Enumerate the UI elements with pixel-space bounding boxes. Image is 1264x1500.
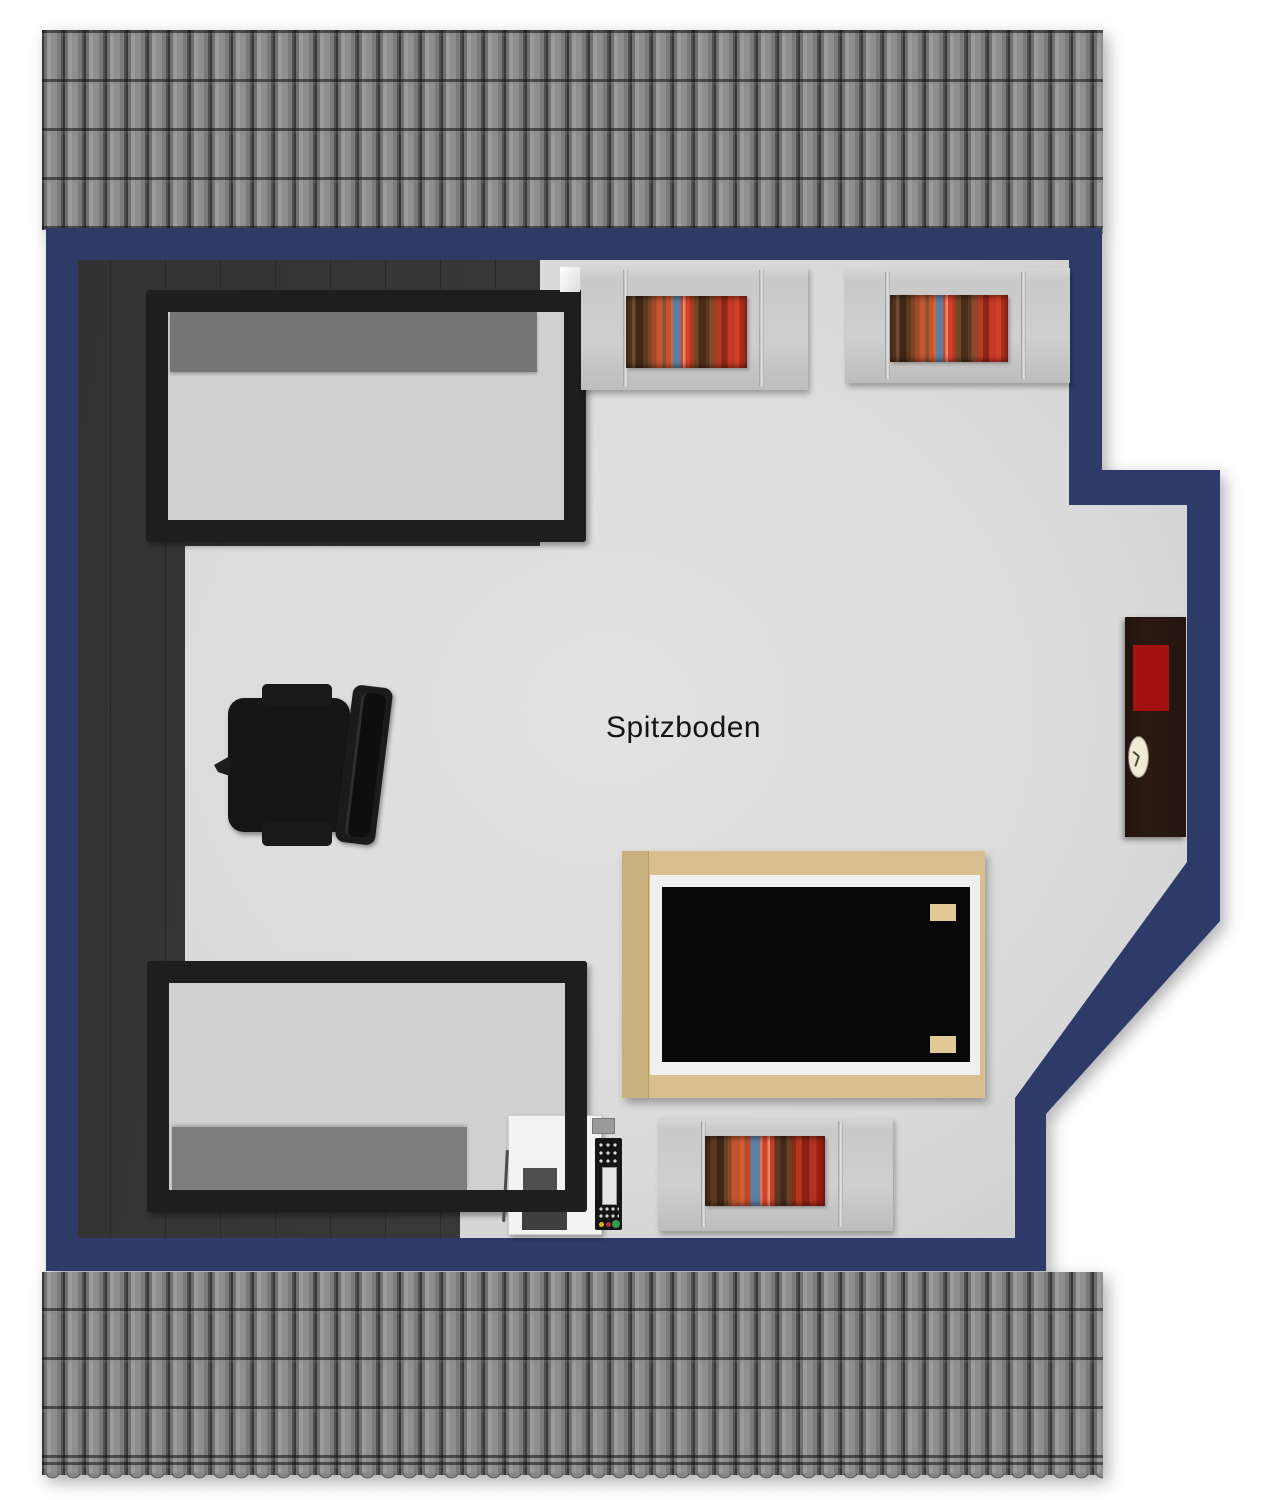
shelf-divider bbox=[1021, 272, 1026, 379]
printer-button-red bbox=[606, 1222, 611, 1227]
shelf-divider bbox=[759, 270, 764, 386]
chair-seat bbox=[228, 698, 350, 832]
room-label: Spitzboden bbox=[606, 711, 761, 745]
bed-top-duvet bbox=[170, 312, 537, 372]
white-box-object bbox=[560, 267, 580, 292]
wall-cabinet bbox=[1125, 617, 1186, 837]
office-chair bbox=[210, 680, 390, 860]
table-cushion bbox=[930, 904, 956, 921]
plan-shadow-wrap bbox=[0, 0, 1264, 1500]
printer-button-yellow bbox=[599, 1222, 604, 1227]
bookshelf-top-right bbox=[845, 268, 1070, 383]
cabinet-red-tray bbox=[1133, 645, 1169, 711]
shelf-divider bbox=[838, 1121, 843, 1227]
table-inner-border bbox=[650, 875, 980, 1075]
chair-armrest-top bbox=[262, 684, 332, 706]
clock-hand-minute bbox=[1134, 756, 1139, 767]
printer-control-panel bbox=[595, 1138, 622, 1230]
attic-floor-plan: { "room": { "label": "Spitzboden", "type… bbox=[0, 0, 1264, 1500]
books-row bbox=[890, 295, 1008, 362]
bed-bottom-frame-overlay bbox=[147, 961, 587, 1212]
bookshelf-bottom bbox=[658, 1117, 893, 1231]
printer-top-piece bbox=[592, 1118, 615, 1134]
table-top-black bbox=[662, 887, 970, 1062]
bookshelf-top-left bbox=[581, 266, 808, 390]
printer-button-green bbox=[612, 1220, 620, 1228]
table bbox=[622, 851, 985, 1098]
printer-keypad bbox=[598, 1206, 619, 1220]
chair-backrest-panel bbox=[344, 692, 386, 838]
chair-lever bbox=[214, 756, 230, 776]
floorplan-svg bbox=[0, 0, 1264, 1500]
books-row bbox=[626, 296, 747, 368]
printer-keys bbox=[598, 1142, 619, 1164]
printer-screen bbox=[602, 1167, 617, 1205]
cabinet-clock bbox=[1128, 736, 1149, 778]
table-side-apron bbox=[622, 851, 649, 1098]
books-row bbox=[705, 1136, 825, 1206]
table-cushion bbox=[930, 1036, 956, 1053]
chair-armrest-bottom bbox=[262, 822, 332, 846]
bed-top bbox=[146, 290, 586, 542]
